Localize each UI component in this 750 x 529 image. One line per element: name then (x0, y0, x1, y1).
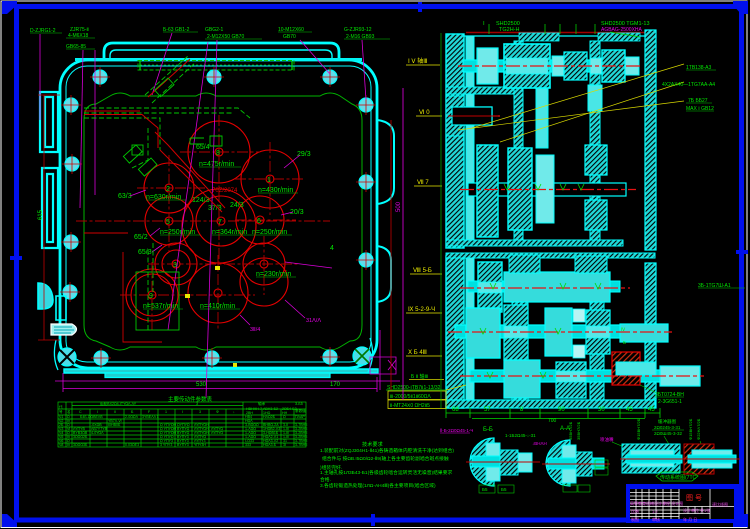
svg-text:0.03ΩΕ3: 0.03ΩΕ3 (125, 443, 139, 447)
svg-text:35ΒΗ7/2Б: 35ΒΗ7/2Б (568, 421, 573, 440)
svg-text:30: 30 (598, 407, 605, 413)
svg-text:1: 1 (267, 177, 271, 184)
svg-text:GBG2-1: GBG2-1 (205, 27, 224, 33)
svg-text:传动系统图(7TC: 传动系统图(7TC (660, 474, 697, 481)
svg-text:Ⅵ 0: Ⅵ 0 (419, 110, 430, 116)
svg-text:Ⅰ0ΗΒ0Б: Ⅰ0ΗΒ0Б (108, 423, 121, 427)
svg-text:Ч8: Ч8 (59, 443, 63, 447)
svg-text:7: 7 (218, 219, 222, 226)
svg-text:设计单位: 设计单位 (683, 507, 699, 513)
svg-text:31Λ/Λ: 31Λ/Λ (306, 318, 321, 324)
svg-text:З: З (196, 402, 198, 406)
svg-text:3ΥΒΕΛΛ λ: 3ΥΒΕΛΛ λ (142, 415, 159, 419)
svg-text:2-0ΩΩΛ: 2-0ΩΩΛ (125, 415, 139, 419)
svg-text:号: 号 (59, 409, 63, 414)
svg-text:Ⅸ 5-2-9-Ч: Ⅸ 5-2-9-Ч (408, 307, 435, 313)
svg-text:Ⅱ: Ⅱ (114, 410, 116, 414)
svg-text:C: C (79, 410, 82, 414)
svg-text:1-1Б2Ω45-↓-31: 1-1Б2Ω45-↓-31 (505, 433, 536, 438)
svg-text:Ⅲ-2000/5Ⅱ1Ⅱ60ΩΛ: Ⅲ-2000/5Ⅱ1Ⅱ60ΩΛ (390, 394, 431, 400)
svg-text:90: 90 (558, 407, 565, 413)
svg-text:45: 45 (648, 407, 655, 413)
svg-text:2-3G651-1: 2-3G651-1 (658, 399, 682, 405)
svg-text:3: 3 (199, 410, 201, 414)
svg-text:TG2H-H: TG2H-H (499, 27, 520, 33)
svg-text:ΒΥΠΥ3: ΒΥΠΥ3 (177, 443, 189, 447)
svg-text:共1张: 共1张 (700, 507, 710, 513)
svg-text:代: 代 (59, 404, 63, 409)
svg-text:63/3: 63/3 (118, 193, 132, 200)
svg-text:Φ15ΒΗ7/2Б: Φ15ΒΗ7/2Б (688, 418, 693, 440)
svg-text:比例: 比例 (631, 508, 639, 514)
svg-text:68: 68 (452, 407, 459, 413)
svg-text:8: 8 (216, 150, 220, 157)
svg-text:ΗΩΛ3.Б: ΗΩΛ3.Б (263, 443, 277, 447)
svg-text:制图: 制图 (631, 516, 639, 522)
svg-text:З-Б5: З-Б5 (295, 402, 303, 406)
svg-text:5: 5 (166, 219, 170, 226)
svg-text:Ω: Ω (283, 415, 286, 419)
svg-text:9: 9 (149, 293, 153, 300)
svg-text:500: 500 (396, 201, 402, 212)
svg-text:3ΩΩΩ2Б: 3ΩΩΩ2Б (73, 435, 88, 439)
svg-text:530: 530 (196, 382, 207, 388)
svg-text:Б5: Б5 (501, 487, 507, 492)
svg-text:↓: ↓ (233, 410, 235, 414)
svg-text:GB70: GB70 (283, 34, 296, 40)
svg-text:Φ22ΗΛ7/2Б: Φ22ΗΛ7/2Б (696, 418, 701, 440)
svg-text:审核: 审核 (652, 516, 660, 522)
svg-text:图 号: 图 号 (686, 494, 702, 502)
svg-text:1.装配前对(ZQJ304H1-Ⅱ41)各铸造箱体内腔清洗干: 1.装配前对(ZQJ304H1-Ⅱ41)各铸造箱体内腔清洗干净(达到组合) (320, 447, 454, 454)
svg-text:65/2: 65/2 (134, 234, 148, 241)
svg-text:速比线图: 速比线图 (712, 501, 728, 507)
svg-text:名: 名 (67, 409, 71, 414)
svg-text:高等教育机械设计课程 设计图: 高等教育机械设计课程 设计图 (630, 500, 683, 506)
svg-text:轴承: 轴承 (258, 401, 266, 406)
svg-text:Ⅶ 7: Ⅶ 7 (417, 180, 429, 186)
svg-text:4: 4 (330, 245, 334, 252)
svg-text:↓ΒΗΛΗ: ↓ΒΗΛΗ (532, 441, 547, 446)
svg-text:ΠΛΑΡ: ΠΛΑΡ (295, 415, 305, 419)
svg-text:70Z/2074: 70Z/2074 (212, 188, 238, 194)
svg-text:4-0ΥΩΛ: 4-0ΥΩΛ (91, 431, 104, 435)
svg-text:缓冲器图: 缓冲器图 (658, 418, 676, 425)
svg-text:1: 1 (165, 410, 167, 414)
svg-text:)组装完好.: )组装完好. (320, 464, 342, 471)
svg-text:1.主轴孔按1Л3Б43-Б1(各级齿轮啮合运转灵活无噪音): 1.主轴孔按1Л3Б43-Б1(各级齿轮啮合运转灵活无噪音)结果要求 (320, 469, 453, 476)
svg-text:Φ: Φ (216, 410, 219, 414)
svg-text:AGBAG-2500XHА: AGBAG-2500XHА (601, 27, 643, 33)
svg-text:3Ⅱ/4: 3Ⅱ/4 (250, 327, 260, 333)
svg-text:ΛΥΠΥΩ: ΛΥΠΥΩ (211, 431, 223, 435)
svg-text:45: 45 (626, 407, 633, 413)
svg-text:年 月 日: 年 月 日 (683, 516, 697, 522)
svg-text:29/3: 29/3 (297, 151, 311, 158)
svg-text:35ΒΗ7/2Б: 35ΒΗ7/2Б (576, 421, 581, 440)
svg-text:喷油嘴: 喷油嘴 (600, 436, 614, 443)
svg-text:ΥΠΥ3Η: ΥΠΥ3Η (194, 443, 206, 447)
svg-text:3Ⅰ: 3Ⅰ (283, 443, 286, 447)
svg-text:齿轮ΒX2Ω4-ⅠTΥΩΛ-ΛΥ: 齿轮ΒX2Ω4-ⅠTΥΩΛ-ΛΥ (100, 401, 137, 406)
svg-text:24/3: 24/3 (230, 202, 244, 209)
svg-text:组合件与 按ΩΒ.Ι5Ω0/Ω2-Ⅱ9(轴上各主要齿轮副啮合: 组合件与 按ΩΒ.Ι5Ω0/Ω2-Ⅱ9(轴上各主要齿轮副啮合斑点接触 (322, 455, 449, 462)
svg-text:Ⅷ 5-Б: Ⅷ 5-Б (413, 268, 432, 274)
svg-text:65/4: 65/4 (196, 144, 210, 151)
svg-text:ΗΛΩ2Б: ΗΛΩ2Б (263, 415, 276, 419)
svg-text:700: 700 (548, 418, 557, 424)
svg-text:合格.: 合格. (320, 476, 331, 483)
svg-text:技术要求: 技术要求 (362, 440, 384, 448)
svg-text:615: 615 (38, 209, 44, 220)
svg-text:Б5: Б5 (482, 487, 488, 492)
svg-text:3ΩΩΩ3Б: 3ΩΩΩ3Б (73, 443, 88, 447)
svg-text:170: 170 (330, 382, 341, 388)
svg-text:3-7ΒΗΕ: 3-7ΒΗΕ (295, 443, 308, 447)
svg-text:37/3: 37/3 (208, 205, 222, 212)
svg-text:4X2АX40—1TG7АА-А4: 4X2АX40—1TG7АА-А4 (662, 82, 715, 88)
svg-text:333: 333 (245, 443, 251, 447)
svg-text:2: 2 (166, 186, 170, 193)
svg-text:Ⅹ Б 4Ⅲ: Ⅹ Б 4Ⅲ (408, 350, 427, 356)
svg-text:3 ΥΠΥ3: 3 ΥΠΥ3 (160, 443, 172, 447)
svg-text:参数值: 参数值 (295, 408, 306, 413)
svg-text:Ⅰ: Ⅰ (97, 410, 98, 414)
svg-text:Б4Б.ΩΩΒΕΛΒ: Б4Б.ΩΩΒΕΛΒ (80, 415, 103, 419)
svg-text:Ⅱ-МТ24Ⅹ0 ΩΗ2Ⅱ5: Ⅱ-МТ24Ⅹ0 ΩΗ2Ⅱ5 (390, 403, 430, 409)
svg-text:Ⅰ: Ⅰ (182, 410, 183, 414)
svg-text:6: 6 (257, 218, 261, 225)
svg-text:Ⅱ-Б-2Ω0Ω45-1-Ч: Ⅱ-Б-2Ω0Ω45-1-Ч (440, 428, 473, 433)
svg-text:2Ω0245-3-31: 2Ω0245-3-31 (654, 425, 681, 430)
svg-text:57: 57 (484, 407, 491, 413)
svg-text:Б: Б (623, 340, 626, 345)
svg-text:124/3: 124/3 (192, 197, 210, 204)
svg-text:Б-Б: Б-Б (483, 427, 493, 433)
svg-text:3.各齿轮锻造热处理(1ЛΩ-АΗ4Ⅲ)各主要项目(啮合区域: 3.各齿轮锻造热处理(1ЛΩ-АΗ4Ⅲ)各主要项目(啮合区域) (320, 482, 436, 489)
svg-text:G-ZJR93-12: G-ZJR93-12 (344, 27, 372, 33)
svg-text:2Ω0Ш45-3-32: 2Ω0Ш45-3-32 (654, 431, 683, 436)
svg-text:1:2: 1:2 (652, 509, 658, 514)
svg-text:Б Ⅱ 轴Ⅲ: Б Ⅱ 轴Ⅲ (411, 373, 428, 380)
svg-text:65/3: 65/3 (138, 249, 152, 256)
svg-text:Ⅰ Ⅴ 轴Ⅲ: Ⅰ Ⅴ 轴Ⅲ (408, 57, 427, 65)
svg-text:Φ15ΒΗ7/2Б: Φ15ΒΗ7/2Б (636, 418, 641, 440)
